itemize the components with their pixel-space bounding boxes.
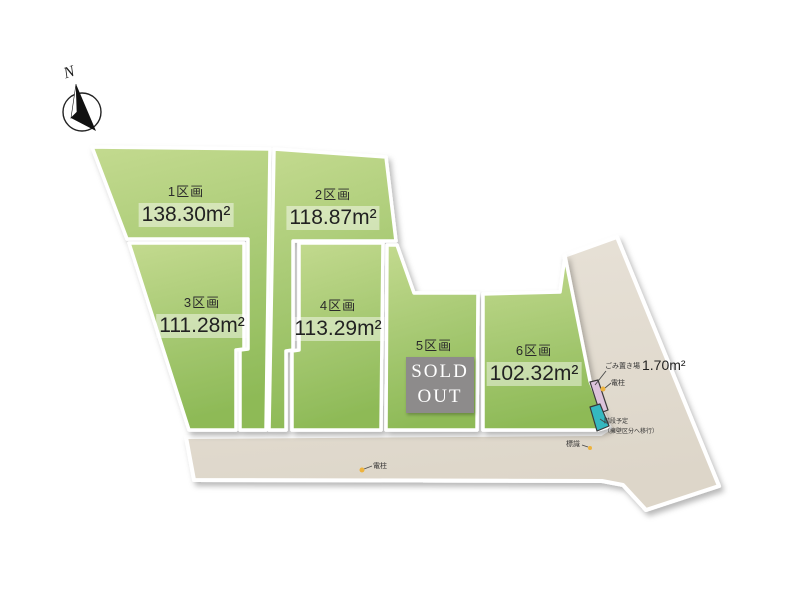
land-plot-map: N 1区画 138.30m² 2区画 118.87m² 3区画 111.28m²… (0, 0, 800, 600)
plot-5-shape (386, 245, 478, 430)
plot-4-shape (292, 243, 383, 430)
plot-3-shape (129, 243, 244, 430)
pole-right-marker (601, 387, 606, 392)
compass-icon (63, 84, 101, 131)
pole-bottom-marker (360, 468, 365, 473)
site-plan-svg (0, 0, 800, 600)
sign-marker (588, 446, 592, 450)
